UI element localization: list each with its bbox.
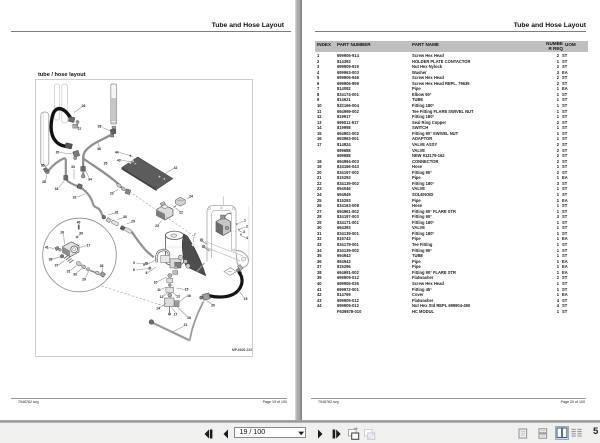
svg-text:18: 18 <box>187 316 191 320</box>
svg-text:MP-6620-223: MP-6620-223 <box>232 348 252 352</box>
svg-text:21: 21 <box>184 323 188 327</box>
